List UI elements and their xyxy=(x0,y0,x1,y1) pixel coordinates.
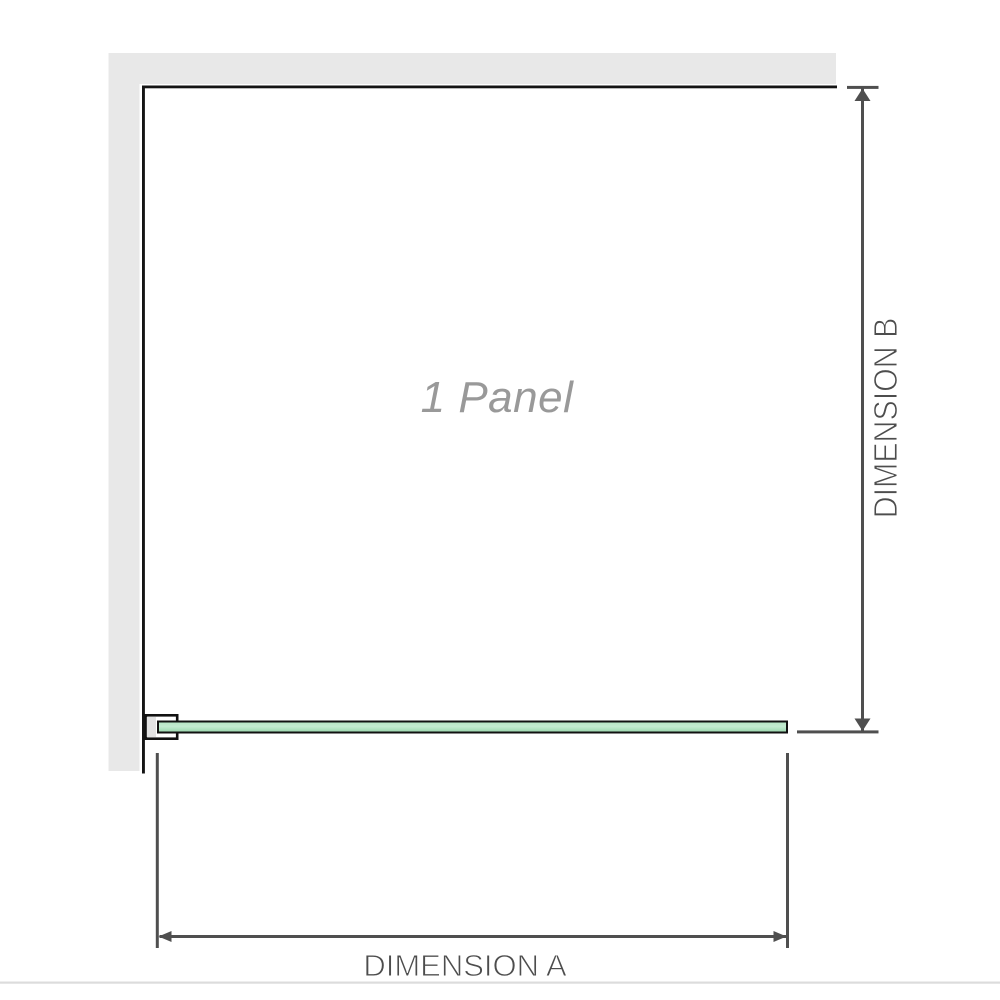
svg-text:DIMENSION A: DIMENSION A xyxy=(363,948,567,983)
svg-text:1 Panel: 1 Panel xyxy=(421,373,574,422)
svg-text:DIMENSION B: DIMENSION B xyxy=(867,318,904,519)
